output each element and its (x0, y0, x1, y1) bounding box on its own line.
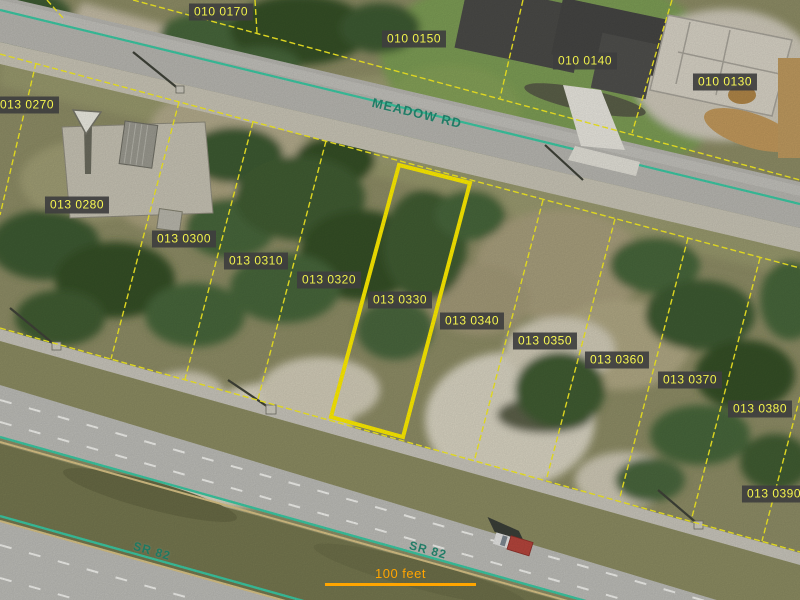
scale-bar-label: 100 feet (325, 566, 476, 581)
aerial-map-canvas[interactable] (0, 0, 800, 600)
map-viewport[interactable]: 010 0170010 0150010 0140010 0130013 0270… (0, 0, 800, 600)
scale-bar: 100 feet (325, 566, 476, 586)
scale-bar-line (325, 583, 476, 586)
grain-overlay (0, 0, 800, 600)
